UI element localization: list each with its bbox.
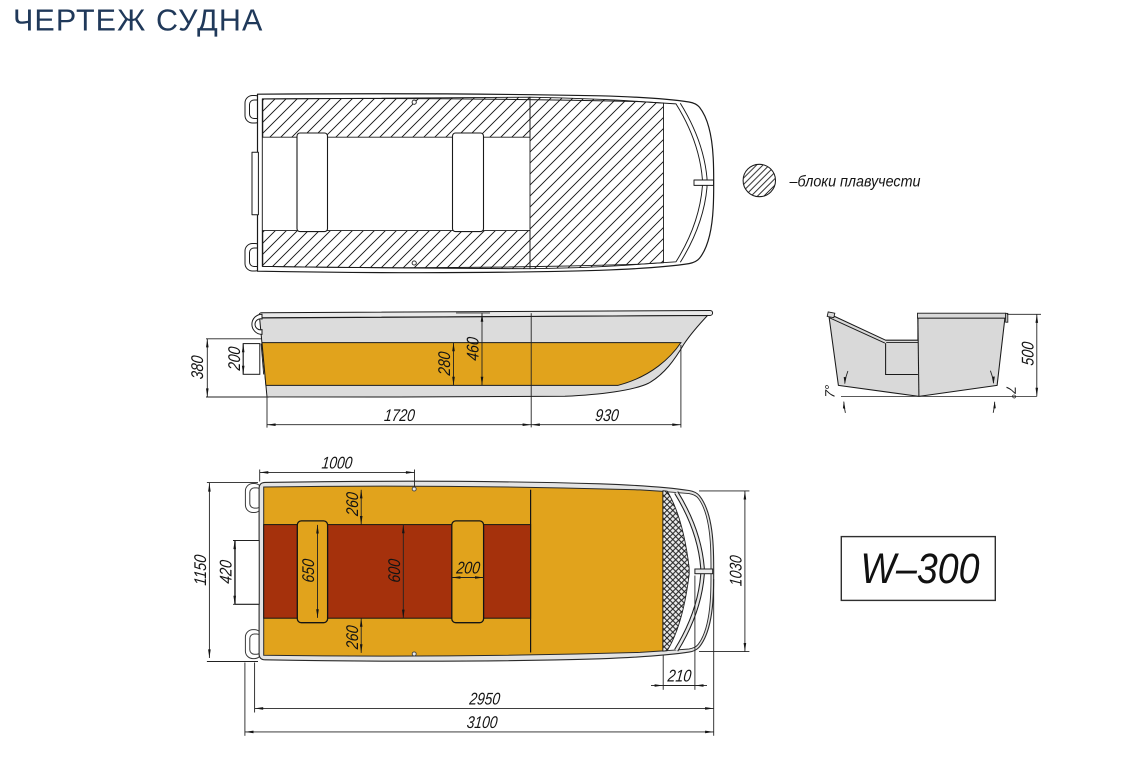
svg-text:420: 420 xyxy=(216,559,235,585)
svg-text:500: 500 xyxy=(1018,340,1037,366)
svg-text:380: 380 xyxy=(188,354,207,380)
svg-text:3100: 3100 xyxy=(466,713,499,732)
svg-text:930: 930 xyxy=(594,406,620,425)
svg-text:210: 210 xyxy=(666,667,693,686)
svg-text:1150: 1150 xyxy=(191,553,210,586)
svg-text:200: 200 xyxy=(455,559,482,578)
svg-text:1720: 1720 xyxy=(383,406,416,425)
svg-text:1030: 1030 xyxy=(727,554,746,587)
svg-text:600: 600 xyxy=(385,558,404,584)
svg-text:650: 650 xyxy=(299,558,318,584)
svg-text:280: 280 xyxy=(435,350,454,377)
svg-text:460: 460 xyxy=(464,336,483,362)
svg-text:1000: 1000 xyxy=(321,454,354,473)
svg-text:W–300: W–300 xyxy=(861,545,980,593)
svg-text:260: 260 xyxy=(343,624,362,651)
svg-text:2950: 2950 xyxy=(468,690,502,709)
svg-text:200: 200 xyxy=(225,345,244,372)
svg-text:–блоки плавучести: –блоки плавучести xyxy=(789,174,921,191)
svg-text:7°: 7° xyxy=(1004,385,1019,400)
svg-text:260: 260 xyxy=(343,491,362,518)
svg-text:7°: 7° xyxy=(823,384,838,399)
svg-text:ЧЕРТЕЖ СУДНА: ЧЕРТЕЖ СУДНА xyxy=(13,4,264,38)
